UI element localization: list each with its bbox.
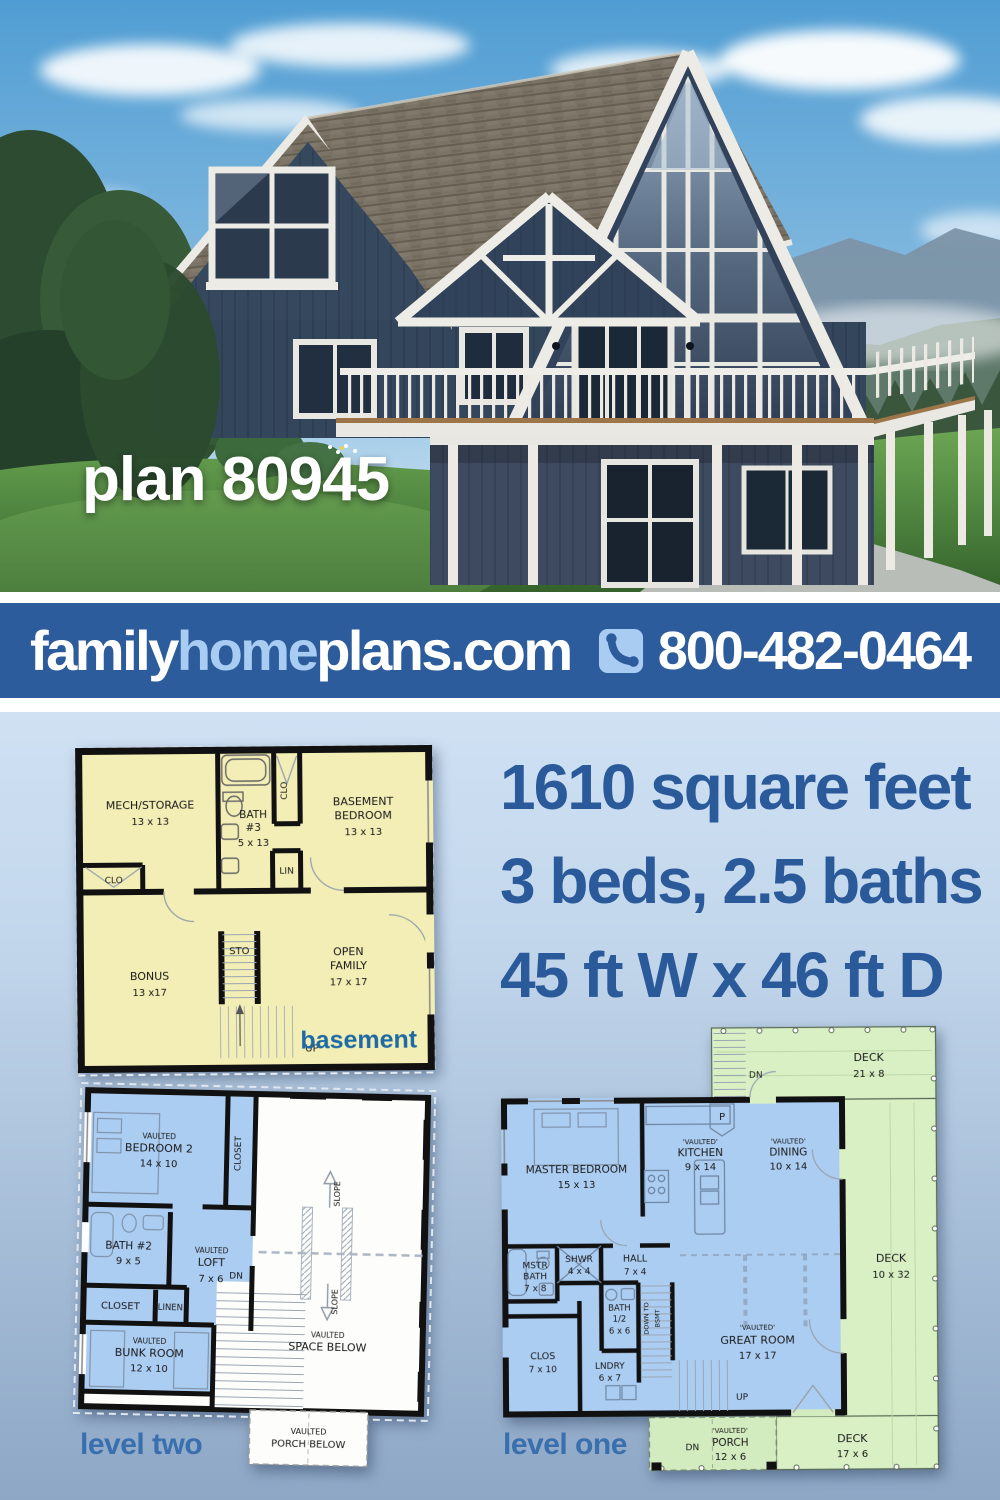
porch-dn-label: DN xyxy=(686,1443,700,1453)
room-label: VAULTED xyxy=(195,1246,229,1256)
slope-label: SLOPE xyxy=(330,1289,340,1315)
room-label: DINING xyxy=(769,1146,807,1158)
linen-label: LINEN xyxy=(158,1303,184,1314)
room-dims: 7 x 10 xyxy=(529,1365,558,1375)
level-two-label: level two xyxy=(80,1428,202,1462)
closet-label: CLOSET xyxy=(101,1301,141,1313)
room-dims: 7 x 6 xyxy=(198,1274,223,1286)
phone-contact: 800-482-0464 xyxy=(598,620,970,682)
stairs-up xyxy=(673,1360,731,1411)
room-dims: 7 x 8 xyxy=(524,1284,547,1294)
room-dims: 12 x 10 xyxy=(130,1363,168,1375)
room-label: BONUS xyxy=(130,970,169,983)
room-label: BATH xyxy=(523,1272,547,1282)
plan-stats: 1610 square feet 3 beds, 2.5 baths 45 ft… xyxy=(500,740,1000,1022)
deck-dims: 21 x 8 xyxy=(853,1069,884,1080)
room-dims: 17 x 17 xyxy=(330,977,368,988)
room-label: OPEN xyxy=(333,945,364,958)
room-label: CLOS xyxy=(530,1351,555,1362)
room-label: BASEMENT xyxy=(333,795,394,809)
room-dims: 13 x 13 xyxy=(131,817,169,828)
stat-beds-baths: 3 beds, 2.5 baths xyxy=(500,834,1000,928)
room-label: MSTR xyxy=(522,1261,547,1271)
room-label: PORCH xyxy=(712,1437,749,1449)
room-dims: 7 x 4 xyxy=(624,1268,647,1278)
room-label: VAULTED xyxy=(133,1336,167,1346)
room-label: VAULTED xyxy=(291,1427,327,1437)
banner-band: familyhomeplans.com 800-482-0464 xyxy=(0,603,1000,698)
deck-dn-label: DN xyxy=(749,1071,763,1081)
room-label: 'VAULTED' xyxy=(740,1324,775,1332)
room-label: MECH/STORAGE xyxy=(106,799,195,813)
plan-number-overlay: plan 80945 xyxy=(82,444,389,515)
room-label: BATH #2 xyxy=(105,1240,152,1253)
stat-dimensions: 45 ft W x 46 ft D xyxy=(500,928,1000,1022)
stairs-label: BSMT xyxy=(653,1309,661,1327)
room-dims: 13 x 13 xyxy=(344,827,382,838)
deck-dims: 17 x 6 xyxy=(837,1449,868,1460)
level-one-label: level one xyxy=(503,1428,627,1462)
deck-label: DECK xyxy=(837,1432,868,1445)
room-label: SPACE BELOW xyxy=(288,1340,367,1355)
phone-icon xyxy=(598,628,644,674)
stairs-up-label: UP xyxy=(736,1393,749,1403)
room-label: MASTER BEDROOM xyxy=(526,1164,627,1177)
room-dims: 13 x17 xyxy=(132,988,167,999)
level-one-floor-plan: MASTER BEDROOM 15 x 13 'VAULTED' KITCHEN… xyxy=(493,1018,946,1481)
closet-label: CLO xyxy=(105,876,123,886)
room-dims: 6 x 7 xyxy=(599,1374,622,1384)
logo-family: family xyxy=(30,619,177,682)
room-label: BATH xyxy=(239,809,267,821)
deck-dims: 10 x 32 xyxy=(872,1270,910,1281)
closet-label: CLO xyxy=(280,782,290,800)
room-label: PORCH BELOW xyxy=(271,1438,346,1451)
room-label: 'VAULTED' xyxy=(713,1427,748,1435)
room-label: LNDRY xyxy=(595,1362,625,1372)
room-label: BEDROOM xyxy=(334,809,392,823)
logo-plans: plans.com xyxy=(316,619,570,682)
room-label: #3 xyxy=(245,822,261,834)
room-label: BEDROOM 2 xyxy=(125,1141,193,1156)
storage-label: STO xyxy=(229,946,250,957)
room-label: KITCHEN xyxy=(678,1147,724,1159)
linen-label: LIN xyxy=(279,867,293,877)
brand-banner: familyhomeplans.com 800-482-0464 xyxy=(0,592,1000,712)
pantry-label: P xyxy=(719,1112,725,1123)
room-label: HALL xyxy=(623,1254,648,1265)
room-dims: 9 x 5 xyxy=(116,1256,141,1268)
stairs-dn-label: DN xyxy=(229,1271,243,1281)
phone-number: 800-482-0464 xyxy=(658,620,970,682)
room-dims: 17 x 17 xyxy=(739,1351,777,1362)
room-label: 1/2 xyxy=(613,1315,627,1325)
room-label: 'VAULTED' xyxy=(683,1138,718,1146)
closet-label: CLOSET xyxy=(233,1136,244,1172)
level-two-floor-plan: VAULTED BEDROOM 2 14 x 10 CLOSET BATH #2… xyxy=(72,1082,437,1474)
room-label: GREAT ROOM xyxy=(720,1333,795,1347)
room-label: SHWR xyxy=(565,1255,593,1265)
room-label: LOFT xyxy=(198,1256,226,1270)
room-dims: 12 x 6 xyxy=(715,1452,746,1463)
room-label: VAULTED xyxy=(311,1330,345,1340)
stat-square-feet: 1610 square feet xyxy=(500,740,1000,834)
deck-label: DECK xyxy=(876,1252,907,1265)
room-label: 'VAULTED' xyxy=(771,1137,806,1145)
room-label: BUNK ROOM xyxy=(115,1346,184,1361)
basement-floor-plan: MECH/STORAGE 13 x 13 BATH #3 5 x 13 BASE… xyxy=(75,744,436,1077)
logo-home: home xyxy=(177,619,316,682)
stairs-label: DOWN TO xyxy=(642,1302,650,1335)
room-dims: 15 x 13 xyxy=(558,1180,596,1191)
room-label: VAULTED xyxy=(142,1131,176,1141)
site-logo: familyhomeplans.com xyxy=(30,618,571,683)
porch-below xyxy=(249,1410,368,1467)
deck-stairs xyxy=(713,1030,745,1098)
basement-stairs xyxy=(222,934,257,1002)
room-dims: 10 x 14 xyxy=(770,1161,808,1172)
room-label: FAMILY xyxy=(330,959,367,972)
room-dims: 5 x 13 xyxy=(238,838,269,849)
basement-plan-label: basement xyxy=(300,1026,418,1055)
house-plan-promo-image: plan 80945 familyhomeplans.com 800-482-0… xyxy=(0,0,1000,1500)
room-label: BATH xyxy=(608,1304,631,1314)
room-dims: 9 x 14 xyxy=(685,1162,716,1173)
deck-label: DECK xyxy=(853,1051,884,1064)
room-dims: 6 x 6 xyxy=(609,1327,630,1337)
slope-label: SLOPE xyxy=(333,1181,343,1207)
room-dims: 4 x 4 xyxy=(568,1267,591,1277)
room-dims: 14 x 10 xyxy=(140,1158,178,1170)
